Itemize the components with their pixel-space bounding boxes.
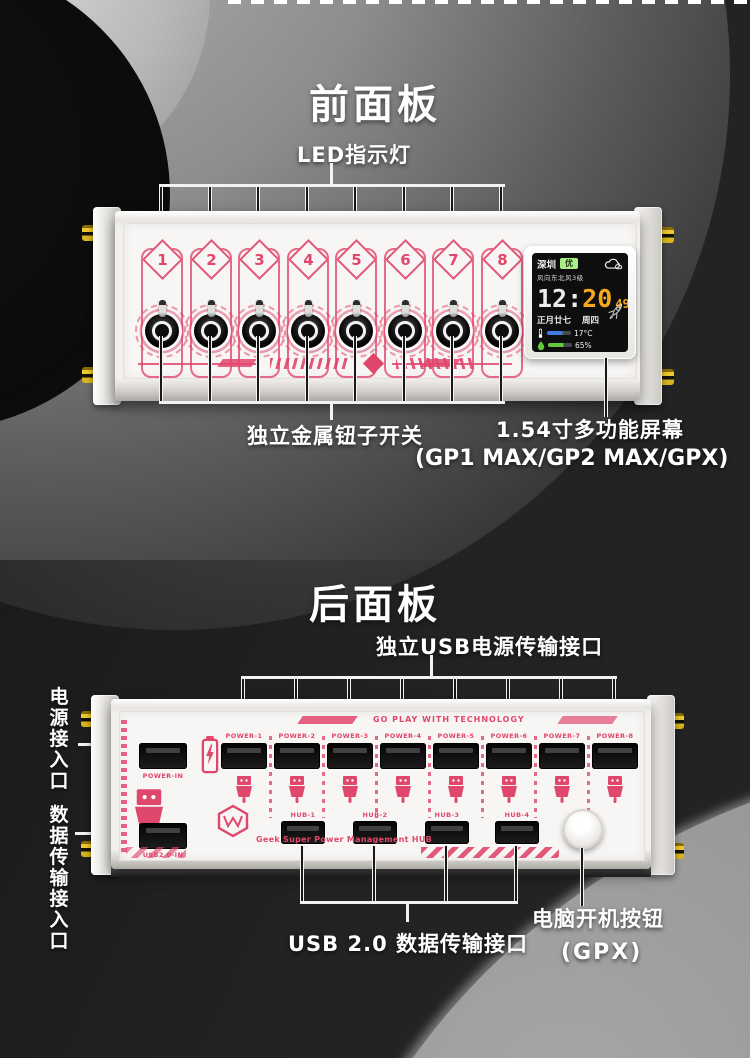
hub-port-label-3: HUB-3 [421,811,473,819]
power-port-5 [433,743,479,769]
leader-line [353,336,357,401]
power-port-3 [327,743,373,769]
leader-line [256,336,260,401]
power-port-7 [539,743,585,769]
rear-device-body: GO PLAY WITH TECHNOLOGY POWER-IN [111,699,651,869]
leader-line [430,655,433,677]
usb-slot [280,748,313,753]
hub-port-label-1: HUB-1 [277,811,329,819]
channel-number: 5 [344,247,369,272]
slogan-text: GO PLAY WITH TECHNOLOGY [373,715,525,724]
power-port-label-1: POWER-1 [218,732,270,740]
power-port-6 [486,743,532,769]
battery-icon [201,736,219,774]
deco-separator [375,736,378,818]
cloud-icon [603,257,623,270]
rear-device-face: GO PLAY WITH TECHNOLOGY POWER-IN [119,711,645,861]
power-input-label: 电源接入口 [47,687,71,792]
screen-bezel: 深圳 优 风向东北风3级 12:2049 正月廿七 [524,246,636,359]
front-device-body: 1 2 3 4 [115,211,640,401]
screen-hour: 12: [537,286,582,311]
gold-connector-pin [661,369,674,385]
power-port-4 [380,743,426,769]
usb-plug-icon [444,775,468,803]
power-port-label-8: POWER-8 [589,732,641,740]
usb-plug-icon [232,775,256,803]
temperature-bar [547,331,571,335]
usb-slot [359,826,391,831]
deco-hazard-stripes [126,847,186,858]
switch-lever [353,300,360,317]
power-port-label-5: POWER-5 [430,732,482,740]
thermometer-icon [537,328,544,339]
metal-switch-label: 独立金属钮子开关 [247,420,423,450]
deco-blade [421,359,461,367]
power-port-label-3: POWER-3 [324,732,376,740]
deco-separator [481,736,484,818]
front-panel-device: 1 2 3 4 [85,205,670,405]
leader-line [514,846,518,903]
channel-number: 1 [150,247,175,272]
power-ports-label: 独立USB电源传输接口 [376,631,603,661]
power-port-label-6: POWER-6 [483,732,535,740]
screen-city: 深圳 [537,257,556,271]
channel-number: 7 [441,247,466,272]
multifunction-screen: 深圳 优 风向东北风3级 12:2049 正月廿七 [532,253,628,352]
usb-slot [431,826,463,831]
usb-slot [146,748,181,753]
screen-weekday: 周四 [582,314,599,326]
brand-text: Geek Super Power Management HUB [256,835,432,844]
deco-blade [297,716,358,724]
humidity-bar [548,343,572,347]
usb-slot [545,748,578,753]
usb-slot [439,748,472,753]
deco-separator [322,736,325,818]
switch-lever [499,300,506,317]
leader-line [406,904,409,922]
rocket-icon [604,299,626,326]
usb-slot [501,826,533,831]
hex-logo-icon [216,804,250,838]
front-section-title: 前面板 [0,72,750,130]
humidity-icon [537,340,545,351]
leader-line [300,846,304,903]
usb-slot [598,748,631,753]
screen-callout-label: 1.54寸多功能屏幕 [496,414,684,444]
data-input-label: 数据传输接入口 [47,805,71,952]
switch-lever [159,300,166,317]
screen-humidity: 65% [575,341,592,350]
channel-number: 2 [199,247,224,272]
deco-separator [534,736,537,818]
hub-port-label-4: HUB-4 [491,811,543,819]
usb-plug-icon [550,775,574,803]
usb-plug-icon [391,775,415,803]
switch-lever [256,300,263,317]
dashed-border-top [228,0,750,4]
usb-slot [146,828,181,833]
usb-plug-icon [285,775,309,803]
deco-chevrons-right [270,358,350,369]
leader-line [444,846,448,903]
screen-wind: 风向东北风3级 [537,272,623,282]
gold-connector-pin [661,227,674,243]
screen-models-label: (GP1 MAX/GP2 MAX/GPX) [415,446,728,471]
mount-bracket-right [647,695,675,875]
usb2-in-port [139,823,187,849]
power-button-model-label: (GPX) [561,940,642,965]
usb-slot [287,826,319,831]
leader-line [372,846,376,903]
deco-separator [428,736,431,818]
leader-line [580,848,584,906]
usb-slot [492,748,525,753]
usb-slot [333,748,366,753]
switch-lever [402,300,409,317]
rear-panel-device: GO PLAY WITH TECHNOLOGY POWER-IN [85,695,680,877]
switch-lever [208,300,215,317]
power-port-8 [592,743,638,769]
power-port-label-4: POWER-4 [377,732,429,740]
deco-blade [557,716,618,724]
leader-line [604,358,608,417]
front-device-face: 1 2 3 4 [123,223,637,379]
leader-line [300,901,518,904]
usb-plug-icon [338,775,362,803]
usb-slot [227,748,260,753]
power-button [563,809,603,849]
led-indicator-label: LED指示灯 [297,139,411,169]
hub-ports-label: USB 2.0 数据传输接口 [288,928,528,958]
power-port-2 [274,743,320,769]
leader-line [159,336,163,401]
rear-section-title: 后面板 [0,572,750,630]
leader-line [402,336,406,401]
screen-aqi-badge: 优 [560,258,578,269]
usb-slot [386,748,419,753]
leader-line [499,336,503,401]
switch-lever [450,300,457,317]
channel-number: 4 [296,247,321,272]
hub-port-4 [495,821,539,844]
deco-hazard-stripes [421,847,559,858]
usb-plug-icon [603,775,627,803]
power-port-label-7: POWER-7 [536,732,588,740]
hub-port-label-2: HUB-2 [349,811,401,819]
deco-blade [217,359,257,367]
screen-temperature: 17°C [574,329,593,338]
screen-lunar-date: 正月廿七 [537,314,571,326]
product-diagram: 前面板 LED指示灯 1 2 [0,0,750,1058]
deco-separator [269,736,272,818]
leader-line [330,404,333,420]
switch-lever [305,300,312,317]
power-in-port-label: POWER-IN [133,772,193,780]
leader-line [305,336,309,401]
leader-line [450,336,454,401]
deco-dash-column [121,720,127,852]
power-port-label-2: POWER-2 [271,732,323,740]
usb-plug-icon [497,775,521,803]
power-in-port [139,743,187,769]
power-button-label: 电脑开机按钮 [532,903,664,933]
channel-number: 6 [393,247,418,272]
leader-line [330,163,333,186]
channel-number: 8 [490,247,515,272]
power-port-1 [221,743,267,769]
channel-number: 3 [247,247,272,272]
deco-separator [587,736,590,818]
leader-line [208,336,212,401]
